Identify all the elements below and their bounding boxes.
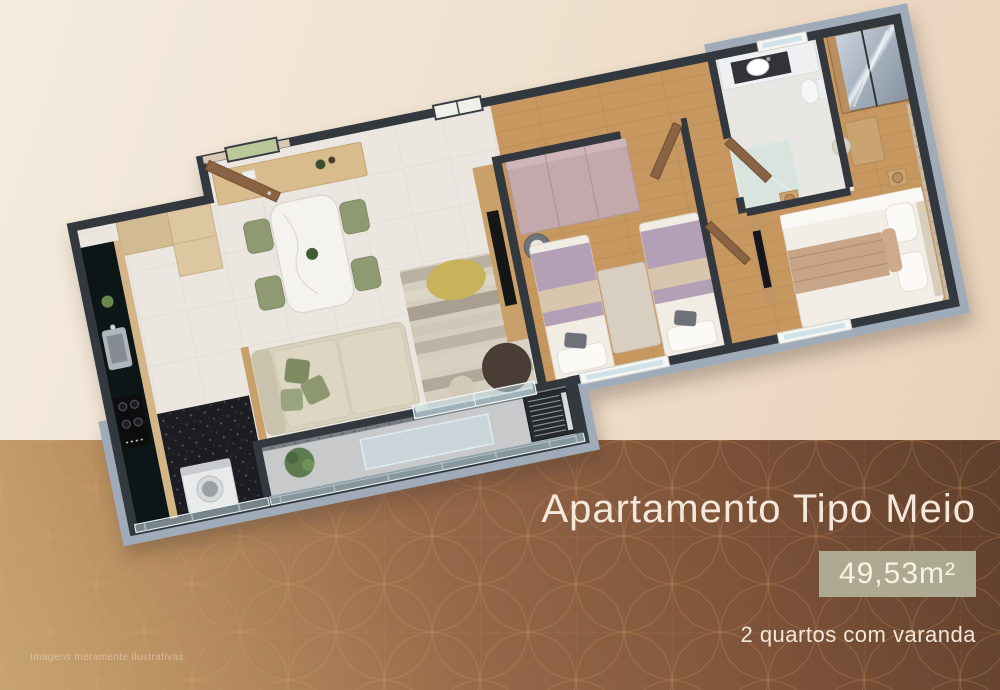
marketing-slide: Apartamento Tipo Meio 49,53m² 2 quartos … <box>0 0 1000 690</box>
disclaimer-text: Imagens meramente ilustrativas <box>30 652 184 663</box>
page-title: Apartamento Tipo Meio <box>541 488 976 530</box>
caption-subtitle: 2 quartos com varanda <box>740 622 976 648</box>
caption-block: Apartamento Tipo Meio 49,53m² 2 quartos … <box>541 488 976 648</box>
area-badge: 49,53m² <box>819 551 976 597</box>
